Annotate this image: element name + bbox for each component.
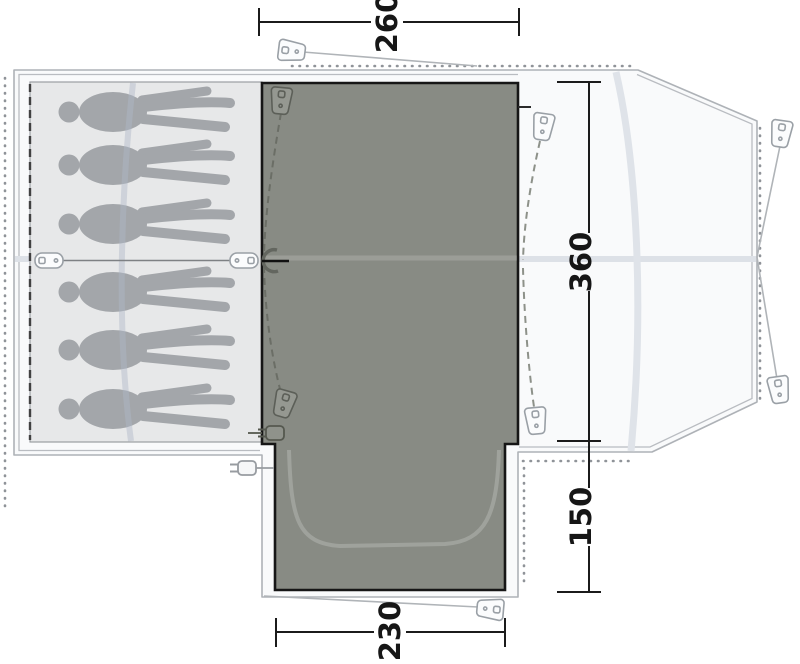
dimension-front-width: 260 [370, 0, 404, 53]
dimension-porch-width: 230 [373, 601, 407, 662]
tent-floorplan-svg: 260 360 150 230 [0, 0, 800, 664]
toggle-icon [35, 253, 63, 268]
floorplan-canvas: 260 360 150 230 [0, 0, 800, 664]
toggle-icon [230, 253, 258, 268]
peg-icon [767, 375, 792, 404]
peg-icon [277, 39, 306, 63]
dimension-main-depth: 360 [564, 232, 598, 293]
living-area-groundsheet [248, 83, 518, 590]
dimension-porch-depth: 150 [564, 487, 598, 548]
peg-icon [769, 119, 794, 148]
sleeping-cabin [30, 82, 262, 442]
peg-icon [476, 597, 504, 620]
